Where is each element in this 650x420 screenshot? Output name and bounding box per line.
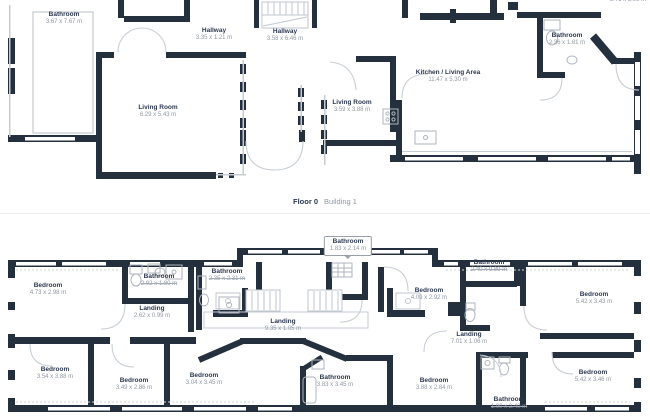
room-name: Bedroom [575,369,611,377]
room-label-bathroom-narrow: Bathroom 2.40 x 0.89 m [471,259,507,275]
room-label-landing-small: Landing 2.62 x 0.99 m [134,305,170,321]
room-dims: 6.29 x 5.43 m [138,112,177,120]
room-name: Hallway [196,27,232,35]
room-dims: 3.04 x 3.45 m [186,380,222,388]
room-name: Bathroom [471,259,507,267]
room-label-bathroom-b: Bathroom 2.92 x 1.80 m [141,273,177,289]
stairs-icon-left [216,290,280,311]
room-name: Bathroom [141,273,177,281]
room-name: Landing [265,318,301,326]
room-dims: 7.01 x 1.06 m [451,339,487,347]
room-label-living-room-large: Living Room 6.29 x 5.43 m [138,104,177,120]
room-dims: 2.35 x 2.31 m [209,276,245,284]
room-dims: 3.88 x 2.84 m [416,385,452,393]
room-name: Kitchen / Living Area [416,69,480,77]
room-dims: 4.73 x 2.98 m [30,290,66,298]
room-name: Bedroom [186,372,222,380]
room-name: Bathroom [46,11,82,19]
room-label-bathroom-c: Bathroom 2.35 x 2.31 m [209,268,245,284]
floorplan-drawing [0,0,650,420]
room-dims: 2.40 x 0.89 m [471,267,507,275]
room-label-bedroom-j: Bedroom 3.88 x 2.84 m [416,377,452,393]
room-label-bedroom-g: Bedroom 3.49 x 2.86 m [116,377,152,393]
kitchen-sink-icon [415,131,436,144]
room-dims: 2.62 x 0.99 m [134,313,170,321]
room-name: Bathroom [491,396,527,404]
room-label-bathroom-i: Bathroom 3.83 x 3.45 m [317,374,353,390]
room-dims: 11.47 x 5.30 m [416,77,480,85]
room-dims: 2.92 x 1.80 m [141,281,177,289]
room-label-landing-right: Landing 7.01 x 1.06 m [451,331,487,347]
room-name: Living Room [138,104,177,112]
room-name: Bedroom [37,366,73,374]
room-name: Landing [451,331,487,339]
callout-room-dims: 1.83 x 2.14 m [330,246,366,254]
room-dims: 1.90 x 2.40 m [491,404,527,412]
floor-caption: Floor 0Building 1 [0,191,650,209]
room-label-bedroom-l: Bedroom 5.42 x 3.46 m [575,369,611,385]
room-dims: 4.09 x 2.92 m [411,295,447,303]
room-label-cutoff-top-right: 3.71 x 3.98 m [610,0,646,5]
room-dims: 5.42 x 3.46 m [575,377,611,385]
room-dims: 3.67 x 7.67 m [46,19,82,27]
room-dims: 5.42 x 3.43 m [576,299,612,307]
floor0-plan [8,0,641,179]
room-label-hallway-large: Hallway 3.58 x 6.46 m [267,28,303,44]
room-name: Bedroom [411,287,447,295]
callout-room-name: Bathroom [330,238,366,246]
room-label-bedroom-f: Bedroom 3.54 x 3.88 m [37,366,73,382]
stairs-icon [262,2,308,28]
building-label: Building 1 [324,197,357,206]
room-dims: 2.36 x 1.81 m [549,40,585,48]
room-name: Bathroom [209,268,245,276]
room-dims: 3.58 x 6.46 m [267,36,303,44]
room-dims: 9.35 x 1.05 m [265,326,301,334]
room-label-bedroom-a: Bedroom 4.73 x 2.98 m [30,282,66,298]
room-name: Landing [134,305,170,313]
room-name: Bedroom [416,377,452,385]
room-dims: 3.59 x 3.88 m [332,107,371,115]
room-name: Living Room [332,99,371,107]
room-name: Hallway [267,28,303,36]
room-dims: 3.83 x 3.45 m [317,382,353,390]
room-name: Bathroom [549,32,585,40]
floorplan-canvas: Bathroom 3.67 x 7.67 m Hallway 3.35 x 1.… [0,0,650,420]
floor-label: Floor 0 [293,197,318,206]
room-label-kitchen-living-area: Kitchen / Living Area 11.47 x 5.30 m [416,69,480,85]
room-dims: 3.35 x 1.21 m [196,35,232,43]
room-label-landing-large: Landing 9.35 x 1.05 m [265,318,301,334]
room-label-hallway-small: Hallway 3.35 x 1.21 m [196,27,232,43]
room-label-bedroom-d: Bedroom 4.09 x 2.92 m [411,287,447,303]
room-name: Bedroom [30,282,66,290]
room-dims: 3.49 x 2.86 m [116,385,152,393]
room-dims: 3.71 x 3.98 m [610,0,646,5]
room-label-bathroom-pool: Bathroom 3.67 x 7.67 m [46,11,82,27]
room-dims: 3.54 x 3.88 m [37,374,73,382]
bathroom-callout[interactable]: Bathroom 1.83 x 2.14 m [324,236,372,256]
room-name: Bathroom [317,374,353,382]
room-name: Bedroom [116,377,152,385]
room-label-bedroom-h: Bedroom 3.04 x 3.45 m [186,372,222,388]
room-label-bathroom-k: Bathroom 1.90 x 2.40 m [491,396,527,412]
room-label-bathroom-top-right: Bathroom 2.36 x 1.81 m [549,32,585,48]
room-name: Bedroom [576,291,612,299]
pool-room-outline [33,12,93,133]
section-separator [0,213,650,214]
room-label-bedroom-e: Bedroom 5.42 x 3.43 m [576,291,612,307]
room-label-living-room-small: Living Room 3.59 x 3.88 m [332,99,371,115]
floor0-door-arcs [118,28,639,170]
